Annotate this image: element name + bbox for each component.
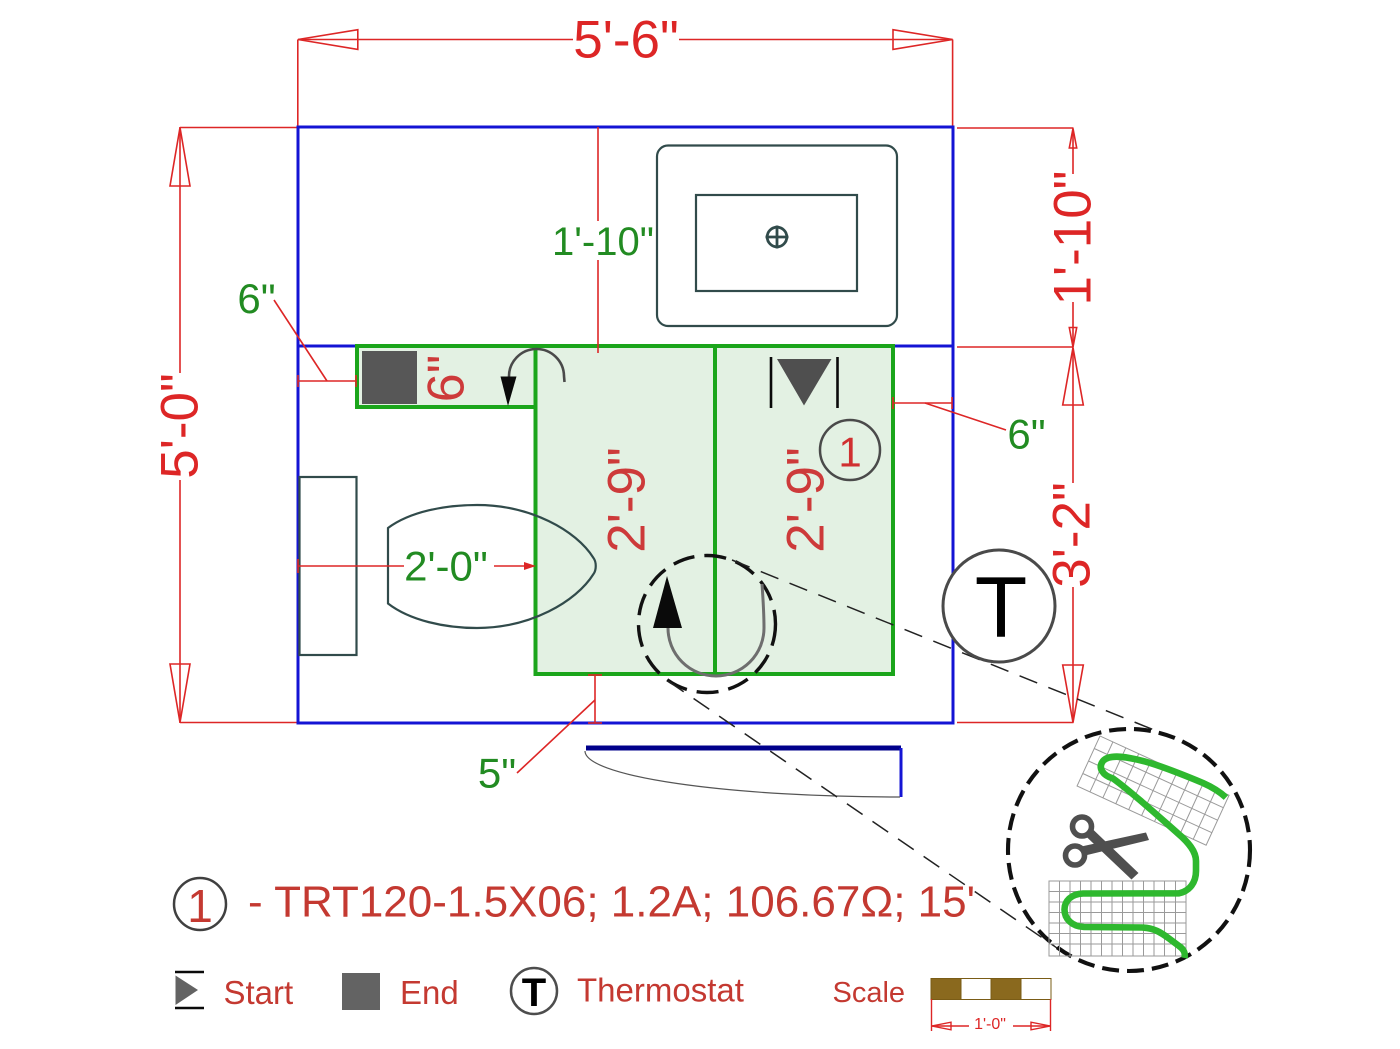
- svg-text:2'-9": 2'-9": [598, 447, 657, 553]
- svg-text:2'-9": 2'-9": [777, 447, 836, 553]
- svg-text:5": 5": [478, 750, 516, 797]
- svg-text:T: T: [522, 971, 546, 1015]
- svg-text:1: 1: [187, 880, 213, 932]
- svg-text:1'-0": 1'-0": [974, 1016, 1006, 1033]
- svg-text:6": 6": [237, 275, 275, 322]
- svg-text:5'-6": 5'-6": [573, 11, 679, 70]
- svg-text:- TRT120-1.5X06; 1.2A; 106.67Ω: - TRT120-1.5X06; 1.2A; 106.67Ω; 15': [248, 878, 975, 927]
- svg-text:1'-10": 1'-10": [1044, 170, 1103, 305]
- svg-text:2'-0": 2'-0": [404, 543, 488, 590]
- svg-text:1: 1: [838, 429, 861, 476]
- svg-text:6": 6": [418, 355, 476, 402]
- svg-text:End: End: [400, 974, 459, 1011]
- svg-text:1'-10": 1'-10": [552, 220, 654, 264]
- svg-text:T: T: [975, 560, 1028, 656]
- svg-text:Start: Start: [224, 974, 294, 1011]
- svg-text:6": 6": [1007, 411, 1045, 458]
- svg-text:Thermostat: Thermostat: [577, 972, 744, 1009]
- svg-text:3'-2": 3'-2": [1043, 482, 1102, 588]
- svg-text:5'-0": 5'-0": [151, 373, 210, 479]
- svg-text:Scale: Scale: [833, 977, 906, 1009]
